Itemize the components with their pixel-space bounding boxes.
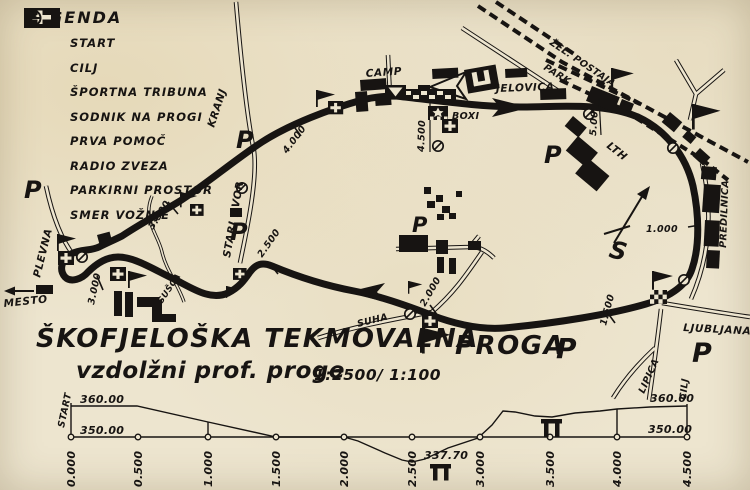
start-flag-icon — [428, 106, 448, 120]
lth-building — [565, 116, 587, 138]
profile-subtitle: vzdolžni prof. proge — [76, 358, 345, 384]
y-left-top: 360.00 — [80, 393, 124, 406]
legend-item-radio: RADIO ZVEZA — [24, 154, 214, 179]
label-zel-postaja: ŽEL. POSTAJA — [546, 37, 617, 90]
first-aid-icon — [58, 251, 74, 265]
parking-p: P — [236, 126, 254, 154]
predilnica-building — [701, 166, 717, 180]
x-tick-2: 1.000 — [202, 451, 215, 487]
direction-arrow-west — [348, 283, 385, 302]
scanned-race-track-map: STARI DVOR KRANJ CAMP JELOVICA BOXI ŽEL.… — [0, 0, 750, 490]
x-tick-3: 1.500 — [270, 451, 283, 487]
profile-start-label: START — [56, 391, 74, 429]
parking-p: P — [544, 141, 562, 169]
min-elevation: 337.70 — [424, 449, 468, 462]
label-boxi: BOXI — [452, 111, 480, 122]
marshal-flag-icon — [408, 281, 422, 294]
x-tick-0: 0.000 — [65, 451, 78, 487]
x-tick-4: 2.000 — [338, 451, 351, 487]
jelovica-building — [464, 64, 500, 93]
parking-icon: P — [24, 181, 70, 199]
legend-item-start: START — [24, 31, 214, 56]
marker-3000: 3.000 — [86, 272, 103, 306]
x-tick-9: 4.500 — [681, 451, 694, 488]
radio-icon — [679, 275, 689, 285]
parking-p: P — [692, 338, 712, 369]
legend-item-prva-pomoc: PRVA POMOČ — [24, 129, 214, 154]
compass-needle — [604, 186, 650, 243]
label-lth: LTH — [604, 140, 629, 163]
y-right-top: 360.00 — [650, 392, 694, 405]
radio-icon — [668, 143, 678, 153]
marker-1000: 1.000 — [646, 224, 678, 235]
marker-5000: 5.00 — [588, 110, 601, 136]
legend-item-tribuna: ŠPORTNA TRIBUNA — [24, 80, 214, 105]
y-left-bottom: 350.00 — [80, 424, 124, 437]
label-ljubljana: LJUBLJANA — [683, 322, 750, 338]
legend-item-smer: SMER VOŽNJE — [24, 203, 214, 228]
x-tick-5: 2.500 — [406, 451, 419, 487]
page-title: ŠKOFJELOŠKA TEKMOVALNA — [36, 324, 479, 354]
label-jelovica: JELOVICA — [494, 81, 555, 95]
label-compass-s: S — [607, 235, 630, 266]
label-mesto: MESTO — [3, 293, 48, 310]
legend-item-parkirni: P PARKIRNI PROSTOR — [24, 178, 214, 203]
map-scale: 1:2500/ 1:100 — [314, 366, 441, 384]
radio-icon — [433, 141, 443, 151]
profile-line — [71, 406, 687, 462]
marshal-flag-icon — [652, 271, 673, 290]
x-tick-8: 4.000 — [611, 451, 624, 488]
legend-item-cilj: CILJ — [24, 56, 214, 81]
first-aid-icon — [233, 268, 247, 280]
marker-4500: 4.500 — [416, 120, 428, 153]
mesto-building — [36, 285, 53, 294]
label-camp: CAMP — [365, 65, 402, 80]
legend: LEGENDA START CILJ ŠPORTNA TRIBUNA SODNI… — [24, 8, 214, 227]
x-tick-1: 0.500 — [132, 451, 145, 487]
first-aid-icon — [328, 101, 343, 114]
label-predilnica: PREDILNICA — [718, 180, 731, 248]
first-aid-icon — [110, 267, 126, 281]
finish-flag-icon — [650, 290, 667, 304]
label-plevna: PLEVNA — [31, 227, 55, 279]
marker-2500: 2.500 — [255, 227, 282, 260]
x-tick-6: 3.000 — [474, 451, 487, 487]
mesto-arrow — [4, 287, 34, 296]
parking-p: P — [412, 213, 428, 237]
elevation-profile: 360.00 350.00 360.00 350.00 337.70 START… — [56, 391, 694, 488]
x-tick-7: 3.500 — [544, 451, 557, 487]
marshal-flag-icon — [692, 104, 721, 130]
page-title-proga: PROGA — [455, 331, 565, 361]
boxi-building — [402, 89, 456, 100]
parking-p: P — [230, 218, 248, 246]
tribune-icon — [385, 85, 406, 99]
y-right-bottom: 350.00 — [648, 423, 692, 436]
radio-icon — [405, 309, 415, 319]
radio-icon — [77, 252, 87, 262]
marshal-flag-icon — [128, 271, 147, 288]
legend-item-sodnik: SODNIK NA PROGI — [24, 105, 214, 130]
